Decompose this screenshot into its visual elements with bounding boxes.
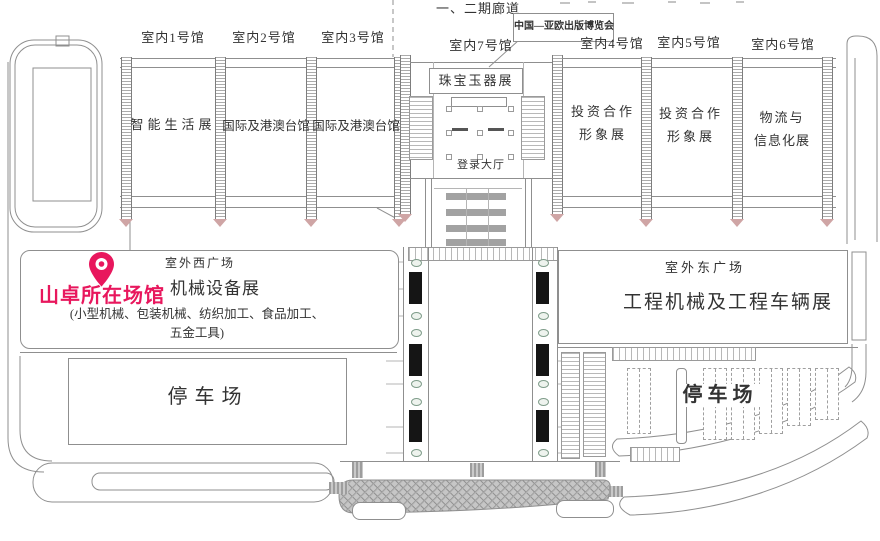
hall7-stair-block xyxy=(521,96,545,160)
west-building-outline xyxy=(10,36,130,252)
stair-step xyxy=(446,239,506,246)
stair-line xyxy=(488,188,489,246)
hall7-pillar-dot xyxy=(508,130,514,136)
hall7-pillar-dot xyxy=(477,106,483,112)
walkway-light xyxy=(538,398,549,406)
pin-venue-label: 山卓所在场馆 xyxy=(36,285,168,308)
hall7-name: 室内7号馆 xyxy=(441,39,521,54)
hall6-exhibit-line1: 物流与 xyxy=(737,111,827,126)
hall7-pillar-dot xyxy=(477,130,483,136)
walkway-light xyxy=(538,329,549,337)
west-plaza-exhibit: 机械设备展 xyxy=(165,279,265,299)
hall7-pillar-dot xyxy=(446,106,452,112)
walkway-light xyxy=(411,312,422,320)
west-halls-top-line-inner xyxy=(120,67,403,68)
column-foot xyxy=(213,219,227,227)
walkway-light xyxy=(538,449,549,457)
column-foot xyxy=(304,219,318,227)
hall2-name: 室内2号馆 xyxy=(219,31,309,46)
top-edge-mark xyxy=(700,2,710,4)
walkway-end-line xyxy=(340,461,620,462)
stair-rail xyxy=(431,178,432,247)
walkway-light xyxy=(411,398,422,406)
walkway-light xyxy=(411,380,422,388)
parking-row xyxy=(627,368,651,434)
east-halls-top-line-inner xyxy=(562,67,836,68)
column-foot xyxy=(820,219,834,227)
walkway-pillar xyxy=(536,410,549,442)
east-halls-top-line xyxy=(562,58,836,59)
traffic-island xyxy=(352,502,406,520)
parking-strip xyxy=(583,352,606,457)
stair-step xyxy=(446,225,506,232)
hall-column xyxy=(306,57,317,219)
west-halls-top-line xyxy=(120,58,403,59)
hall7-counter xyxy=(452,128,468,131)
parking-row-divider xyxy=(771,369,772,433)
column-foot xyxy=(550,214,564,222)
stair-platform xyxy=(408,247,558,261)
west-plaza-label: 室外西广场 xyxy=(150,257,250,271)
east-halls-bottom-line-inner xyxy=(562,196,836,197)
walkway-light xyxy=(538,259,549,267)
walkway-pillar xyxy=(409,410,422,442)
stair-rail xyxy=(531,178,532,247)
hall1-exhibit: 智能生活展 xyxy=(126,118,220,133)
walkway-pillar xyxy=(536,272,549,304)
parking-row-divider xyxy=(639,369,640,433)
east-halls-bottom-line xyxy=(562,207,836,208)
hall1-name: 室内1号馆 xyxy=(128,31,218,46)
walkway-light xyxy=(411,259,422,267)
walkway-wall xyxy=(403,247,404,462)
parking-row xyxy=(787,368,811,426)
east-parking-label: 停车场 xyxy=(678,384,762,407)
hall3-exhibit: 国际及港澳台馆 xyxy=(311,119,401,133)
west-plaza-detail-line2: 五金工具) xyxy=(22,326,372,340)
column-foot xyxy=(730,219,744,227)
walkway-pillar xyxy=(409,344,422,376)
hall4-exhibit-line1: 投资合作 xyxy=(558,105,648,120)
walkway-pillar xyxy=(536,344,549,376)
east-plaza-label: 室外东广场 xyxy=(655,261,755,276)
west-plaza-detail-line1: (小型机械、包装机械、纺织加工、食品加工、 xyxy=(22,307,372,321)
parking-strip xyxy=(561,352,580,459)
crossing-stub xyxy=(595,462,606,477)
top-edge-mark xyxy=(668,1,676,3)
parking-strip xyxy=(612,347,756,361)
crosswalk xyxy=(609,486,623,497)
lobby-label: 登录大厅 xyxy=(448,159,514,172)
hall6-exhibit-line2: 信息化展 xyxy=(737,134,827,149)
column-foot xyxy=(639,219,653,227)
hall4-exhibit-line2: 形象展 xyxy=(558,128,648,143)
hall5-exhibit-line1: 投资合作 xyxy=(646,107,736,122)
walkway-wall xyxy=(532,247,533,462)
walkway-light xyxy=(411,329,422,337)
traffic-island xyxy=(556,500,614,518)
crosswalk xyxy=(329,482,348,494)
walkway-light xyxy=(411,449,422,457)
stair-line xyxy=(434,188,522,189)
hall7-pillar-dot xyxy=(508,106,514,112)
stair-line xyxy=(466,188,467,246)
parking-strip xyxy=(630,447,680,462)
parking-row-divider xyxy=(827,369,828,419)
hall2-exhibit: 国际及港澳台馆 xyxy=(221,119,311,133)
top-edge-mark xyxy=(560,2,570,4)
hall3-name: 室内3号馆 xyxy=(308,31,398,46)
hall5-exhibit-line2: 形象展 xyxy=(646,130,736,145)
walkway-pillar xyxy=(409,272,422,304)
top-edge-mark xyxy=(622,2,634,4)
walkway-light xyxy=(538,380,549,388)
crossing-stub xyxy=(352,462,363,478)
top-edge-mark xyxy=(736,1,744,3)
walkway-wall xyxy=(428,247,429,462)
west-parking-label: 停车场 xyxy=(158,386,258,409)
hall7-top-line xyxy=(410,62,552,63)
stair-step xyxy=(446,193,506,200)
parking-row-divider xyxy=(799,369,800,425)
top-edge-mark xyxy=(588,1,596,3)
west-plaza-bottom-line xyxy=(20,352,397,353)
hall-column xyxy=(121,57,132,219)
walkway-light xyxy=(538,312,549,320)
hall7-exhibit-box: 珠宝玉器展 xyxy=(429,68,523,94)
stair-step xyxy=(446,209,506,216)
west-halls-bottom-line-inner xyxy=(120,196,403,197)
hall7-counter xyxy=(488,128,504,131)
west-halls-bottom-line xyxy=(120,207,403,208)
exhibition-floor-plan: 一、二期廊道 中国—亚欧出版博览会 室内1号馆 室内2号馆 室内3号馆 智能生活… xyxy=(0,0,880,541)
hall7-stair-block xyxy=(409,96,433,160)
location-pin-icon xyxy=(88,251,115,288)
parking-row xyxy=(759,368,783,434)
crossing-stub xyxy=(470,463,484,477)
column-foot xyxy=(398,214,412,222)
stair-rail xyxy=(525,178,526,247)
column-foot xyxy=(119,219,133,227)
east-plaza-exhibit: 工程机械及工程车辆展 xyxy=(598,292,858,314)
hall6-name: 室内6号馆 xyxy=(738,38,828,53)
parking-row xyxy=(815,368,839,420)
hall5-name: 室内5号馆 xyxy=(644,36,734,51)
stair-rail xyxy=(425,178,426,247)
hall-column xyxy=(215,57,226,219)
